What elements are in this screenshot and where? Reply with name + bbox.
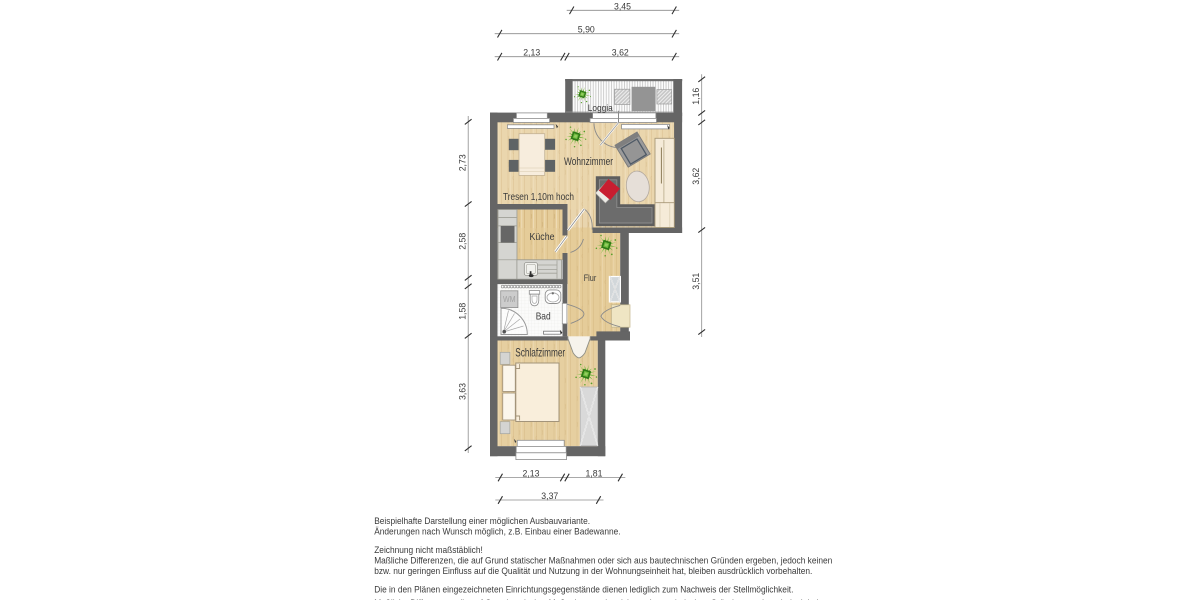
svg-text:Die in den Plänen eingezeichne: Die in den Plänen eingezeichneten Einric… xyxy=(374,584,793,595)
svg-text:Schlafzimmer: Schlafzimmer xyxy=(515,345,565,359)
svg-text:bzw. nur geringen Einfluss auf: bzw. nur geringen Einfluss auf die Quali… xyxy=(374,565,812,576)
svg-text:3,63: 3,63 xyxy=(458,383,469,400)
svg-text:Flur: Flur xyxy=(584,273,597,284)
svg-text:1,81: 1,81 xyxy=(586,468,603,479)
svg-text:Tresen 1,10m hoch: Tresen 1,10m hoch xyxy=(503,191,574,203)
svg-text:3,62: 3,62 xyxy=(691,168,702,185)
svg-text:Maßliche Differenzen, die auf: Maßliche Differenzen, die auf Grund stat… xyxy=(374,555,832,566)
svg-text:1,16: 1,16 xyxy=(691,88,702,105)
svg-text:3,45: 3,45 xyxy=(614,1,631,12)
svg-text:WM: WM xyxy=(503,294,516,304)
svg-text:5,90: 5,90 xyxy=(578,25,595,36)
svg-text:2,13: 2,13 xyxy=(523,48,540,59)
svg-text:3,37: 3,37 xyxy=(541,491,558,502)
svg-text:3,51: 3,51 xyxy=(691,273,702,290)
svg-text:Zeichnung nicht maßstäblich!: Zeichnung nicht maßstäblich! xyxy=(374,545,483,556)
svg-text:2,58: 2,58 xyxy=(458,233,469,250)
svg-text:1,58: 1,58 xyxy=(458,303,469,320)
svg-text:Küche: Küche xyxy=(530,231,555,243)
svg-text:2,13: 2,13 xyxy=(523,468,540,479)
svg-text:2,73: 2,73 xyxy=(458,154,469,171)
svg-text:Wohnzimmer: Wohnzimmer xyxy=(564,156,613,168)
svg-text:Beispielhafte Darstellung eine: Beispielhafte Darstellung einer mögliche… xyxy=(374,515,590,526)
svg-text:Änderungen nach Wunsch möglich: Änderungen nach Wunsch möglich, z.B. Ein… xyxy=(374,526,620,537)
svg-text:Bad: Bad xyxy=(536,311,551,323)
svg-text:Loggia: Loggia xyxy=(588,103,614,114)
svg-text:3,62: 3,62 xyxy=(612,48,629,59)
